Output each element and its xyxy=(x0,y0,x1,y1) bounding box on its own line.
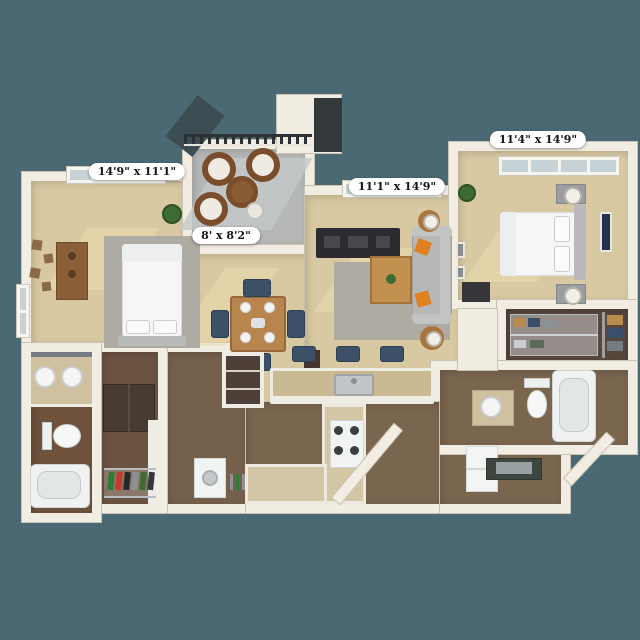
patio-side-table xyxy=(246,202,264,220)
bathtub-basin xyxy=(37,471,81,499)
bar-stool xyxy=(380,346,404,362)
bedroom2-window xyxy=(498,156,620,176)
hanging-clothes xyxy=(607,315,623,325)
plate xyxy=(264,302,275,313)
window-pane xyxy=(590,160,616,172)
sofa-back xyxy=(440,228,450,322)
floor-plan: 14'9" x 11'1" 8' x 8'2" 11'1" x 14'9" 11… xyxy=(0,0,640,640)
dish-rack-plate xyxy=(230,474,233,490)
dish-rack-plate xyxy=(236,474,239,490)
dish-rack-plate xyxy=(242,474,245,490)
bathtub-basin xyxy=(559,378,589,432)
wall-filler xyxy=(458,309,497,370)
window-pane xyxy=(20,313,26,335)
window-pane xyxy=(20,288,26,310)
wall-frame xyxy=(456,242,465,258)
bedroom2-wall-art xyxy=(600,212,612,252)
wall-frame xyxy=(456,266,465,279)
wall-art xyxy=(43,253,53,263)
linen-closet xyxy=(222,352,264,408)
dimension-label-bedroom-2: 11'4" x 14'9" xyxy=(490,131,586,148)
linen-shelf-line xyxy=(226,388,260,390)
bed-pillow xyxy=(153,320,177,334)
bathroom1-sink xyxy=(34,366,56,388)
wall-stub-opening xyxy=(314,98,342,152)
bar-faucet xyxy=(351,378,357,384)
bathroom2-sink xyxy=(480,396,502,418)
sofa-arm xyxy=(412,314,452,324)
stove-burner xyxy=(350,446,359,455)
dimension-label-living: 11'1" x 14'9" xyxy=(349,178,445,195)
coffee-table-plant xyxy=(386,274,396,284)
closet2-rod xyxy=(602,312,605,358)
dresser-decor xyxy=(68,270,76,278)
plant xyxy=(162,204,182,224)
toilet-tank xyxy=(42,422,52,450)
window-pane xyxy=(561,160,587,172)
closet2-shelf-line xyxy=(510,334,598,336)
plate xyxy=(264,332,275,343)
dimension-label-bedroom-1: 14'9" x 11'1" xyxy=(89,163,185,180)
window-pane xyxy=(531,160,557,172)
plate xyxy=(240,302,251,313)
bedroom1-headboard xyxy=(118,336,186,346)
tv-console-detail xyxy=(324,236,340,248)
bedroom1-side-window xyxy=(16,284,30,338)
table-lamp xyxy=(426,331,442,347)
bedroom2-bed-fold xyxy=(500,212,516,276)
patio-railing xyxy=(184,134,312,146)
tv-console-detail xyxy=(376,236,390,248)
folded-clothes xyxy=(528,318,540,327)
closet1-wardrobe-seam xyxy=(128,384,130,432)
bed-pillow xyxy=(554,246,570,272)
entry-mirror xyxy=(496,462,532,474)
folded-clothes xyxy=(514,318,526,327)
folded-clothes xyxy=(544,320,558,328)
window-pane xyxy=(502,160,528,172)
folded-clothes xyxy=(514,340,526,348)
plant xyxy=(458,184,476,202)
folded-clothes xyxy=(530,340,544,348)
toilet-bowl xyxy=(53,424,81,448)
bathroom1-sink xyxy=(61,366,83,388)
plate xyxy=(240,332,251,343)
linen-shelf-line xyxy=(226,370,260,372)
bedroom1-bed-fold xyxy=(122,244,182,262)
patio-chair xyxy=(246,148,280,182)
patio-chair xyxy=(194,192,228,226)
dresser-decor xyxy=(68,252,76,260)
bar-stool xyxy=(292,346,316,362)
table-lamp xyxy=(423,214,439,230)
toilet-bowl xyxy=(527,390,547,418)
nightstand-lamp xyxy=(564,187,582,205)
centerpiece xyxy=(251,318,265,328)
bar-stool xyxy=(336,346,360,362)
hanging-clothes xyxy=(607,341,623,351)
bench xyxy=(462,282,490,302)
bed-pillow xyxy=(554,216,570,242)
wall-art xyxy=(42,282,52,292)
dining-chair xyxy=(243,279,271,297)
kitchen-counter xyxy=(245,464,327,504)
washer-door xyxy=(202,470,218,486)
stove-burner xyxy=(334,446,343,455)
tv-console-detail xyxy=(348,236,368,248)
dining-chair xyxy=(287,310,305,338)
stove-burner xyxy=(350,426,359,435)
wall-art xyxy=(29,267,41,279)
bed-pillow xyxy=(126,320,150,334)
dining-chair xyxy=(211,310,229,338)
bedroom2-headboard xyxy=(574,204,586,280)
dimension-label-patio: 8' x 8'2" xyxy=(192,227,260,244)
stove-burner xyxy=(334,426,343,435)
wall-art xyxy=(31,239,42,250)
toilet-tank xyxy=(524,378,550,388)
window-pane xyxy=(70,170,91,180)
nightstand-lamp xyxy=(564,287,582,305)
hanging-clothes xyxy=(607,328,623,338)
